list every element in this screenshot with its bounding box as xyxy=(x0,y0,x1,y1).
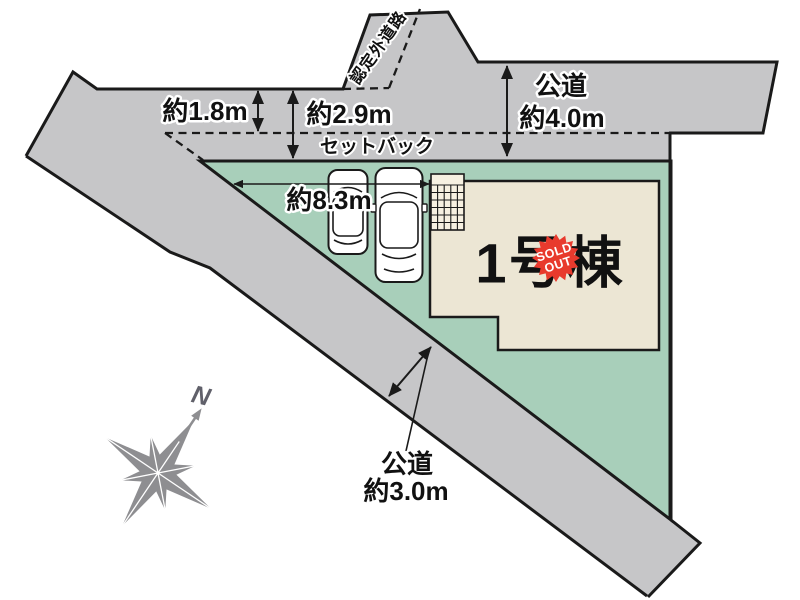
site-frontage-label: 約8.3m xyxy=(286,185,371,215)
site-map-svg: N 約1.8m 約2.9m セットバック 認定外道路 公道 約4.0m 約8.3… xyxy=(0,0,800,600)
plot-layout-diagram: N 約1.8m 約2.9m セットバック 認定外道路 公道 約4.0m 約8.3… xyxy=(0,0,800,600)
south-road-name-label: 公道 xyxy=(381,449,433,479)
south-road-width-label: 約3.0m xyxy=(363,476,448,506)
north-road-total-depth-label: 約2.9m xyxy=(306,99,391,129)
north-road-name-label: 公道 xyxy=(535,71,587,101)
north-road-current-width-label: 約1.8m xyxy=(162,96,247,126)
compass-rose-icon: N xyxy=(69,373,255,562)
entrance-tiles xyxy=(431,174,464,230)
north-road-width-label: 約4.0m xyxy=(519,103,604,133)
compass-north-label: N xyxy=(189,380,214,412)
sold-out-badge: SOLD OUT xyxy=(532,234,580,282)
setback-label: セットバック xyxy=(320,136,434,158)
car-icon xyxy=(371,168,427,282)
